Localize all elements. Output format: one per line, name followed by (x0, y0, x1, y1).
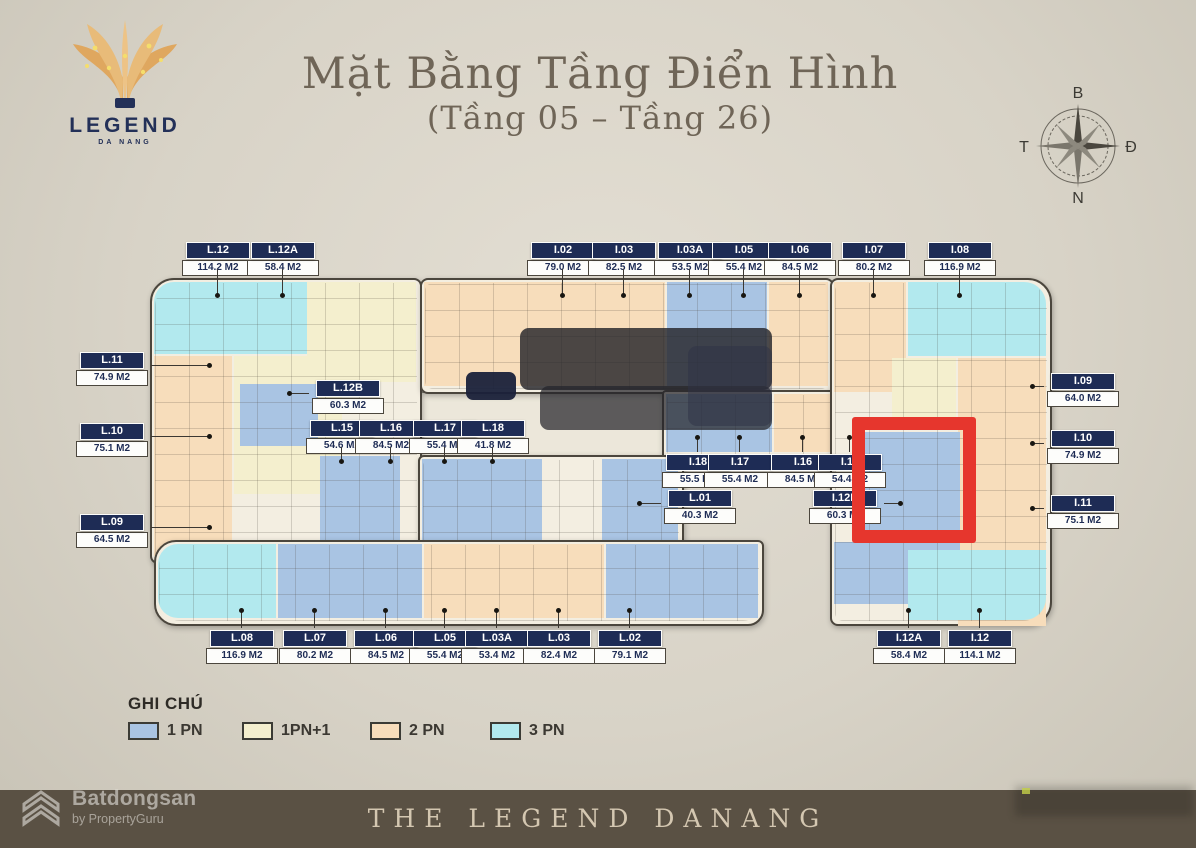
unit-area: 64.5 M2 (76, 532, 148, 548)
unit-callout-I12A: I.12A 58.4 M2 (870, 628, 948, 664)
unit-area: 114.1 M2 (944, 648, 1016, 664)
legend-item-1pn1: 1PN+1 (242, 722, 330, 740)
unit-callout-L07: L.07 80.2 M2 (276, 628, 354, 664)
legend-heading: GHI CHÚ (128, 694, 203, 714)
logo-tree-icon (65, 16, 185, 111)
legend-swatch-3pn (490, 722, 521, 740)
legend-swatch-1pn (128, 722, 159, 740)
unit-id: L.09 (80, 514, 144, 531)
unit-area: 40.3 M2 (664, 508, 736, 524)
logo-sub-text: DA NANG (55, 139, 195, 146)
unit-callout-L10: L.10 75.1 M2 (73, 421, 151, 457)
unit-area: 116.9 M2 (924, 260, 996, 276)
unit-callout-L03: L.03 82.4 M2 (520, 628, 598, 664)
unit-callout-L11: L.11 74.9 M2 (73, 350, 151, 386)
logo-brand-text: LEGEND (55, 114, 195, 138)
footer-smudge (1015, 786, 1193, 816)
unit-id: I.03 (592, 242, 656, 259)
unit-callout-I11: I.11 75.1 M2 (1044, 493, 1122, 529)
unit-id: I.08 (928, 242, 992, 259)
site-watermark: Batdongsan by PropertyGuru (20, 788, 196, 828)
unit-area: 79.1 M2 (594, 648, 666, 664)
title-line-2: (Tầng 05 – Tầng 26) (250, 99, 950, 137)
compass-west-label: T (1019, 139, 1029, 156)
dark-watermark-blob (688, 346, 772, 426)
unit-zone-3pn (158, 544, 276, 618)
legend-label: 1 PN (167, 722, 203, 740)
unit-id: I.06 (768, 242, 832, 259)
footer-smudge-dot (1022, 788, 1030, 794)
unit-callout-L08: L.08 116.9 M2 (203, 628, 281, 664)
legend-item-2pn: 2 PN (370, 722, 445, 740)
dark-watermark-box (466, 372, 516, 400)
unit-zone-2pn (154, 356, 232, 556)
unit-callout-I10: I.10 74.9 M2 (1044, 428, 1122, 464)
unit-zone-1pn1 (892, 358, 956, 424)
legend-label: 3 PN (529, 722, 565, 740)
unit-area: 80.2 M2 (279, 648, 351, 664)
unit-area: 80.2 M2 (838, 260, 910, 276)
unit-id: L.02 (598, 630, 662, 647)
legend-swatch-1pn1 (242, 722, 273, 740)
unit-zone-2pn (424, 544, 604, 618)
unit-id: L.12B (316, 380, 380, 397)
unit-area: 82.5 M2 (588, 260, 660, 276)
unit-zone-1pn (834, 542, 908, 604)
unit-area: 75.1 M2 (76, 441, 148, 457)
compass-north-label: B (1073, 85, 1084, 102)
unit-area: 58.4 M2 (873, 648, 945, 664)
highlight-red-box (852, 417, 976, 543)
unit-area: 116.9 M2 (206, 648, 278, 664)
unit-area: 58.4 M2 (247, 260, 319, 276)
unit-callout-I12: I.12 114.1 M2 (941, 628, 1019, 664)
unit-callout-L02: L.02 79.1 M2 (591, 628, 669, 664)
unit-id: I.07 (842, 242, 906, 259)
unit-callout-I08: I.08 116.9 M2 (921, 240, 999, 276)
unit-id: L.12A (251, 242, 315, 259)
legend-label: 1PN+1 (281, 722, 330, 740)
unit-id: I.10 (1051, 430, 1115, 447)
unit-area: 84.5 M2 (764, 260, 836, 276)
unit-area: 82.4 M2 (523, 648, 595, 664)
project-logo: LEGEND DA NANG (55, 16, 195, 146)
unit-area: 74.9 M2 (1047, 448, 1119, 464)
legend-item-1pn: 1 PN (128, 722, 203, 740)
unit-area: 75.1 M2 (1047, 513, 1119, 529)
compass-east-label: Đ (1125, 139, 1137, 156)
legend-label: 2 PN (409, 722, 445, 740)
unit-id: L.18 (461, 420, 525, 437)
unit-callout-I06: I.06 84.5 M2 (761, 240, 839, 276)
watermark-byline: by PropertyGuru (72, 812, 196, 826)
unit-id: L.07 (283, 630, 347, 647)
watermark-logo-icon (20, 788, 62, 828)
unit-area: 41.8 M2 (457, 438, 529, 454)
unit-id: L.10 (80, 423, 144, 440)
unit-callout-L12B: L.12B 60.3 M2 (309, 378, 387, 414)
unit-id: L.01 (668, 490, 732, 507)
unit-callout-L12A: L.12A 58.4 M2 (244, 240, 322, 276)
page-title: Mặt Bằng Tầng Điển Hình (Tầng 05 – Tầng … (250, 50, 950, 137)
unit-area: 64.0 M2 (1047, 391, 1119, 407)
legend-swatch-2pn (370, 722, 401, 740)
unit-id: L.12 (186, 242, 250, 259)
unit-callout-L18: L.18 41.8 M2 (454, 418, 532, 454)
unit-callout-L09: L.09 64.5 M2 (73, 512, 151, 548)
legend-item-3pn: 3 PN (490, 722, 565, 740)
compass-south-label: N (1072, 190, 1084, 206)
unit-callout-I07: I.07 80.2 M2 (835, 240, 913, 276)
unit-id: I.12 (948, 630, 1012, 647)
unit-id: I.17 (708, 454, 772, 471)
unit-id: I.11 (1051, 495, 1115, 512)
unit-zone-1pn (606, 544, 758, 618)
unit-zone-3pn (908, 282, 1046, 356)
title-line-1: Mặt Bằng Tầng Điển Hình (250, 50, 950, 99)
unit-id: I.09 (1051, 373, 1115, 390)
watermark-name: Batdongsan (72, 788, 196, 809)
building-wing-bottom (154, 540, 764, 626)
compass-icon: B N T Đ (1016, 82, 1140, 206)
unit-area: 74.9 M2 (76, 370, 148, 386)
unit-zone-1pn (278, 544, 422, 618)
unit-area: 60.3 M2 (312, 398, 384, 414)
unit-callout-L01: L.01 40.3 M2 (661, 488, 739, 524)
unit-id: L.03 (527, 630, 591, 647)
unit-callout-I09: I.09 64.0 M2 (1044, 371, 1122, 407)
unit-id: L.08 (210, 630, 274, 647)
unit-id: L.11 (80, 352, 144, 369)
unit-id: I.12A (877, 630, 941, 647)
